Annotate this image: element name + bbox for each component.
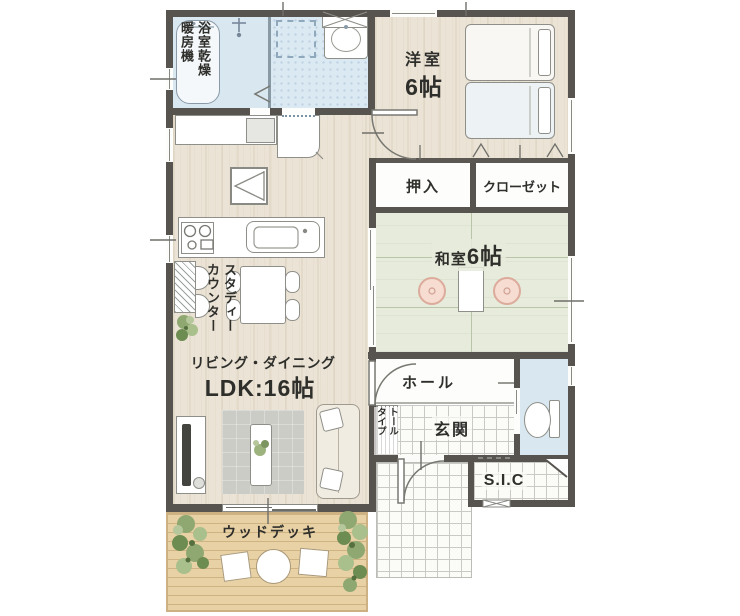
porch-tiles xyxy=(376,462,472,578)
japanese-room-name: 和室 xyxy=(435,251,467,268)
genkan-step-line xyxy=(376,402,514,404)
window-bath-left xyxy=(166,68,173,90)
deck-stool xyxy=(298,548,329,577)
window-kitchen-left xyxy=(166,128,173,162)
closet-label: クローゼット xyxy=(483,177,561,196)
wall-under-bath-b xyxy=(270,108,282,115)
speaker xyxy=(193,477,205,489)
wood-deck-label: ウッドデッキ xyxy=(222,522,318,542)
dining-chair xyxy=(285,299,300,321)
japanese-room-size: 6帖 xyxy=(467,244,503,269)
deck-door-rail xyxy=(226,507,272,509)
study-counter-label: スタディー カウンター xyxy=(204,263,238,351)
bath-partition xyxy=(268,17,271,108)
sic-label: S.I.C xyxy=(482,472,527,490)
washroom-sliding-door xyxy=(282,108,315,117)
bathroom-door-gap xyxy=(250,108,270,115)
window-toilet-right xyxy=(568,366,575,386)
window-western-right xyxy=(568,98,575,154)
shoe-cabinet-label-col2: タイプ xyxy=(374,407,386,455)
washer-pan xyxy=(276,20,316,58)
microwave-unit xyxy=(246,118,275,143)
study-counter-label-col1: スタディー xyxy=(221,263,238,351)
toilet-sliding-door xyxy=(514,388,520,434)
shoe-cabinet-label: トール タイプ xyxy=(374,407,398,455)
floorplan-canvas: 浴室乾燥 暖房機 洋室 6帖 押入 クローゼット 和室6帖 スタディー カウンタ… xyxy=(0,0,740,616)
kitchen-sink xyxy=(246,221,320,253)
bathroom-heater-label-col1: 浴室乾燥 xyxy=(195,21,212,103)
skylight-symbol xyxy=(230,167,268,205)
window-western-top xyxy=(390,10,437,17)
ldk-size-label: LDK:16帖 xyxy=(205,369,316,403)
front-door-gap xyxy=(398,455,444,462)
bathroom-heater-label: 浴室乾燥 暖房機 xyxy=(178,21,212,103)
deck-door-rail xyxy=(272,509,316,511)
japanese-room-label: 和室6帖 xyxy=(432,239,506,271)
washitsu-fusuma-doors xyxy=(368,228,376,347)
deck-sliding-door xyxy=(222,504,318,512)
hall-label: ホール xyxy=(402,372,456,393)
washitsu-low-table xyxy=(458,267,484,312)
window-washitsu-right xyxy=(568,256,575,344)
dining-chair xyxy=(285,271,300,293)
deck-stool xyxy=(220,551,251,582)
sofa-pillow xyxy=(319,467,344,492)
shoe-cabinet-label-col1: トール xyxy=(386,407,398,455)
window-study-left xyxy=(166,235,173,263)
wall-oshiire-closet-divider xyxy=(470,163,476,207)
bed-pillow xyxy=(538,29,551,76)
floor-cushion xyxy=(418,277,446,305)
stove xyxy=(181,222,214,254)
entrance-label: 玄関 xyxy=(432,416,472,440)
study-counter-label-col2: カウンター xyxy=(204,263,221,351)
floor-cushion xyxy=(493,277,521,305)
toilet-bowl xyxy=(524,402,551,438)
bed-pillow xyxy=(538,87,551,134)
wall-sic-bottom xyxy=(468,500,575,507)
oshiire-label: 押入 xyxy=(406,176,440,197)
western-room-size: 6帖 xyxy=(405,68,443,102)
deck-table xyxy=(256,549,291,584)
bathroom-heater-label-col2: 暖房機 xyxy=(178,21,195,103)
tv xyxy=(182,424,191,486)
wall-bath-yoshitsu xyxy=(368,10,375,115)
wall-washitsu-bottom xyxy=(368,352,575,359)
wall-ldk-bottom-a xyxy=(166,504,222,512)
study-counter xyxy=(174,261,196,313)
wall-genkan-bottom-a xyxy=(369,455,398,462)
wall-ldk-east-a xyxy=(369,158,376,228)
dining-table xyxy=(240,266,286,324)
western-room-label: 洋室 xyxy=(405,46,443,70)
wall-under-bath-a xyxy=(166,108,250,115)
hall-door-gap xyxy=(368,362,376,403)
wall-genkan-bottom-b xyxy=(444,455,575,462)
refrigerator xyxy=(277,115,320,158)
wall-ldk-bottom-b xyxy=(318,504,374,512)
wall-under-bath-c xyxy=(315,108,375,115)
wall-closet-bottom xyxy=(375,207,568,213)
living-low-table xyxy=(250,424,272,486)
vanity-basin xyxy=(331,26,361,52)
